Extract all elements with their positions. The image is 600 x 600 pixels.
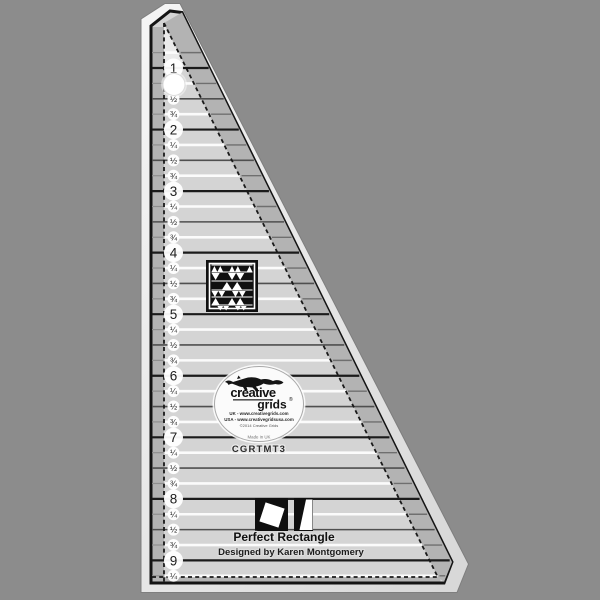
fraction-label: ¼ bbox=[170, 140, 178, 150]
fraction-label: ¼ bbox=[170, 325, 178, 335]
product-photo: 1½¾2¼½¾3¼½¾4¼½¾5¼½¾6¼½¾7¼½¾8¼½¾9¼ creati… bbox=[0, 0, 600, 600]
product-code: CGRTMT3 bbox=[232, 444, 286, 455]
fraction-label: ¾ bbox=[170, 479, 178, 489]
fraction-label: ¾ bbox=[170, 417, 178, 427]
fraction-label: ½ bbox=[170, 340, 177, 350]
inch-number: 4 bbox=[170, 246, 178, 261]
inch-number: 8 bbox=[170, 492, 178, 507]
fraction-label: ¼ bbox=[170, 509, 178, 519]
fraction-label: ¼ bbox=[170, 202, 178, 212]
quilt-pattern-icon bbox=[206, 260, 258, 312]
registered-trademark-symbol: ® bbox=[289, 396, 293, 403]
inch-number: 5 bbox=[170, 307, 178, 322]
fraction-label: ¼ bbox=[170, 263, 178, 273]
fraction-label: ¼ bbox=[170, 448, 178, 458]
hanging-hole bbox=[161, 72, 187, 98]
fraction-label: ¾ bbox=[170, 540, 178, 550]
inch-number: 7 bbox=[170, 430, 178, 445]
fraction-label: ¾ bbox=[170, 232, 178, 242]
fraction-label: ½ bbox=[170, 463, 177, 473]
brand-logo: creative grids ® UK - www.creativegrids.… bbox=[213, 365, 306, 444]
logo-url-uk: UK - www.creativegrids.com bbox=[229, 411, 288, 416]
fraction-label: ¼ bbox=[170, 386, 178, 396]
fraction-label: ½ bbox=[170, 217, 177, 227]
fraction-label: ¾ bbox=[170, 355, 178, 365]
inch-number: 2 bbox=[170, 122, 178, 137]
fraction-label: ½ bbox=[170, 155, 177, 165]
brand-name-line2: grids bbox=[257, 398, 287, 412]
fraction-label: ½ bbox=[170, 402, 177, 412]
inch-number: 6 bbox=[170, 369, 178, 384]
square-on-point-icon bbox=[255, 498, 288, 531]
fraction-label: ½ bbox=[170, 525, 177, 535]
fraction-label: ¾ bbox=[170, 109, 178, 119]
half-rectangle-triangle-icon bbox=[294, 498, 313, 531]
logo-origin: Made in UK bbox=[248, 435, 271, 440]
inch-number: 9 bbox=[170, 553, 178, 568]
ruler-designer: Designed by Karen Montgomery bbox=[218, 547, 364, 558]
logo-url-usa: USA - www.creativegridsusa.com bbox=[224, 417, 294, 422]
logo-copyright: ©2014 Creative Grids bbox=[240, 423, 279, 428]
fraction-label: ¾ bbox=[170, 294, 178, 304]
fraction-label: ¼ bbox=[170, 571, 178, 581]
fraction-label: ½ bbox=[170, 278, 177, 288]
inch-number: 3 bbox=[170, 184, 178, 199]
ruler-title: Perfect Rectangle bbox=[233, 530, 335, 544]
fraction-label: ¾ bbox=[170, 171, 178, 181]
